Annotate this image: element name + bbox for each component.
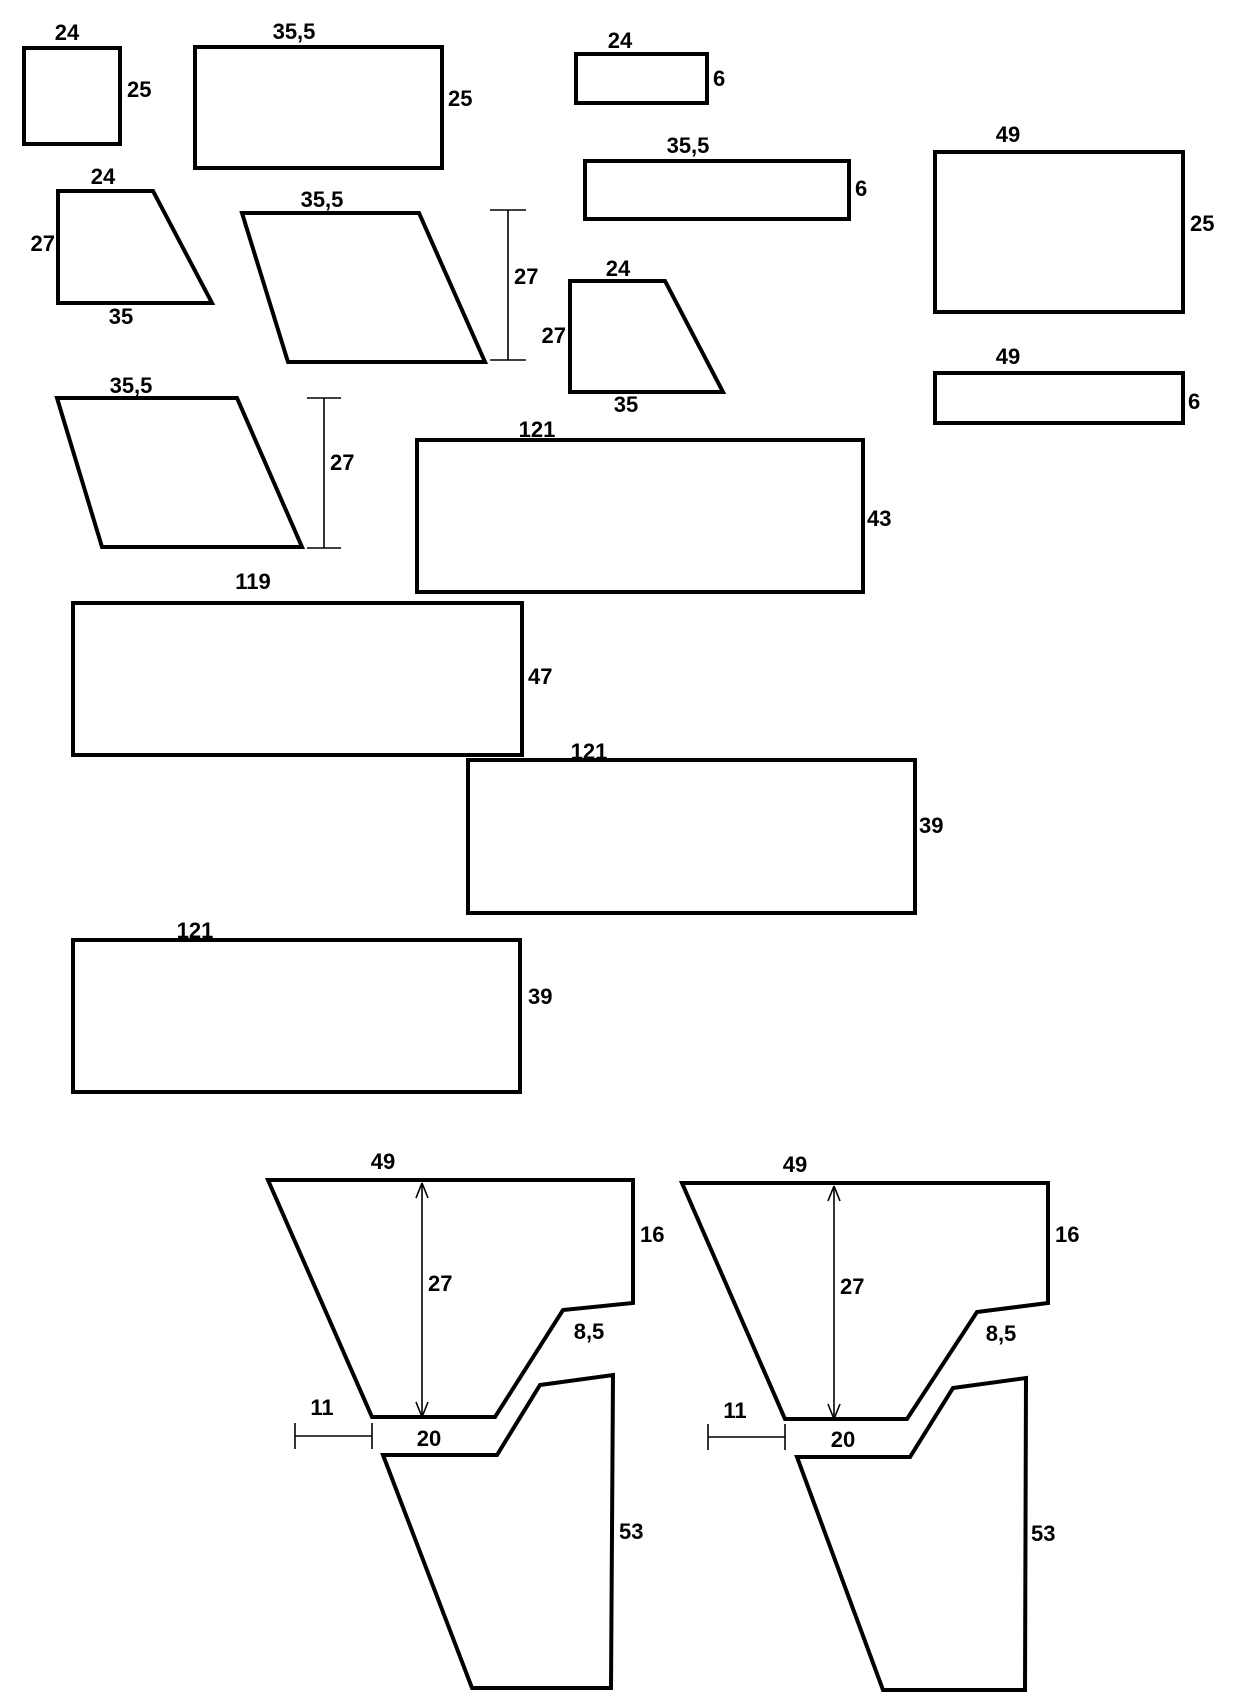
arrowhead-up xyxy=(422,1183,428,1198)
piece-rect-119x47: 119 47 xyxy=(73,569,552,755)
piece-rect-35x6: 35,5 6 xyxy=(585,133,867,219)
trapezoid-outline xyxy=(58,191,212,303)
dim-label: 11 xyxy=(310,1395,333,1420)
piece-panel-b-lower: 53 xyxy=(797,1378,1055,1690)
square-outline xyxy=(24,48,120,144)
dim-label: 24 xyxy=(55,20,80,45)
dim-label: 35,5 xyxy=(273,19,316,44)
dim-label: 6 xyxy=(855,176,867,201)
arrowhead-down xyxy=(828,1404,834,1419)
dim-label: 20 xyxy=(831,1427,855,1452)
dim-label: 20 xyxy=(417,1426,441,1451)
dim-label: 119 xyxy=(235,569,271,594)
piece-panel-a-lower: 53 xyxy=(383,1375,643,1688)
arrowhead-up xyxy=(828,1186,834,1201)
piece-rect-121x39-b: 121 39 xyxy=(73,918,552,1092)
arrowhead-up xyxy=(834,1186,840,1201)
piece-trapezoid-top: 24 27 35 xyxy=(31,164,212,329)
rect-outline xyxy=(73,940,520,1092)
rect-outline xyxy=(576,54,707,103)
dim-label: 53 xyxy=(1031,1521,1055,1546)
piece-rect-35x25: 35,5 25 xyxy=(195,19,472,168)
dim-label: 43 xyxy=(867,506,891,531)
piece-rect-24x6: 24 6 xyxy=(576,28,725,103)
arrowhead-down xyxy=(422,1402,428,1417)
rect-outline xyxy=(468,760,915,913)
piece-trapezoid-mid: 24 27 35 xyxy=(542,256,723,417)
arrowhead-down xyxy=(834,1404,840,1419)
piece-parallelogram-mid: 35,5 27 xyxy=(57,373,354,548)
dim-label: 27 xyxy=(840,1274,864,1299)
dim-label: 121 xyxy=(177,918,214,943)
dim-label: 25 xyxy=(1190,211,1214,236)
dim-label: 121 xyxy=(519,417,556,442)
dim-label: 27 xyxy=(31,231,55,256)
dim-label: 49 xyxy=(996,344,1020,369)
dim-label: 27 xyxy=(428,1271,452,1296)
dim-label: 8,5 xyxy=(986,1321,1017,1346)
dim-label: 49 xyxy=(783,1152,807,1177)
dim-label: 11 xyxy=(723,1398,746,1423)
dim-label: 27 xyxy=(542,323,566,348)
dim-label: 49 xyxy=(996,122,1020,147)
piece-rect-49x25: 49 25 xyxy=(935,122,1214,312)
dim-label: 24 xyxy=(606,256,631,281)
dim-label: 35,5 xyxy=(110,373,153,398)
piece-square-24x25: 24 25 xyxy=(24,20,151,144)
dim-label: 6 xyxy=(1188,389,1200,414)
dim-label: 121 xyxy=(571,739,608,764)
dim-label: 35 xyxy=(109,304,133,329)
panel-outline xyxy=(383,1375,613,1688)
arrowhead-up xyxy=(416,1183,422,1198)
dim-label: 16 xyxy=(640,1222,664,1247)
arrowhead-down xyxy=(416,1402,422,1417)
dim-label: 39 xyxy=(919,813,943,838)
dim-label: 53 xyxy=(619,1519,643,1544)
rect-outline xyxy=(73,603,522,755)
pattern-diagram: 24 25 35,5 25 24 6 35,5 6 49 25 49 6 24 … xyxy=(0,0,1239,1708)
rect-outline xyxy=(585,161,849,219)
dim-label: 35 xyxy=(614,392,638,417)
dim-label: 24 xyxy=(608,28,633,53)
rect-outline xyxy=(935,373,1183,423)
dim-label: 39 xyxy=(528,984,552,1009)
dim-label: 25 xyxy=(448,86,472,111)
piece-panel-b-upper: 49 16 8,5 27 11 20 xyxy=(682,1152,1079,1452)
dim-label: 27 xyxy=(514,264,538,289)
piece-rect-121x43: 121 43 xyxy=(417,417,891,592)
rect-outline xyxy=(195,47,442,168)
dim-label: 27 xyxy=(330,450,354,475)
dim-label: 49 xyxy=(371,1149,395,1174)
rect-outline xyxy=(417,440,863,592)
piece-rect-49x6: 49 6 xyxy=(935,344,1200,423)
dim-label: 6 xyxy=(713,66,725,91)
parallelogram-outline xyxy=(242,213,485,362)
dim-label: 24 xyxy=(91,164,116,189)
piece-parallelogram-top: 35,5 27 xyxy=(242,187,538,362)
dim-label: 47 xyxy=(528,664,552,689)
dim-label: 35,5 xyxy=(301,187,344,212)
parallelogram-outline xyxy=(57,398,302,547)
rect-outline xyxy=(935,152,1183,312)
dim-label: 16 xyxy=(1055,1222,1079,1247)
dim-label: 25 xyxy=(127,77,151,102)
piece-panel-a-upper: 49 16 8,5 27 11 20 xyxy=(268,1149,664,1451)
panel-outline xyxy=(797,1378,1026,1690)
piece-rect-121x39-a: 121 39 xyxy=(468,739,943,913)
trapezoid-outline xyxy=(570,281,723,392)
dim-label: 8,5 xyxy=(574,1319,605,1344)
dim-label: 35,5 xyxy=(667,133,710,158)
